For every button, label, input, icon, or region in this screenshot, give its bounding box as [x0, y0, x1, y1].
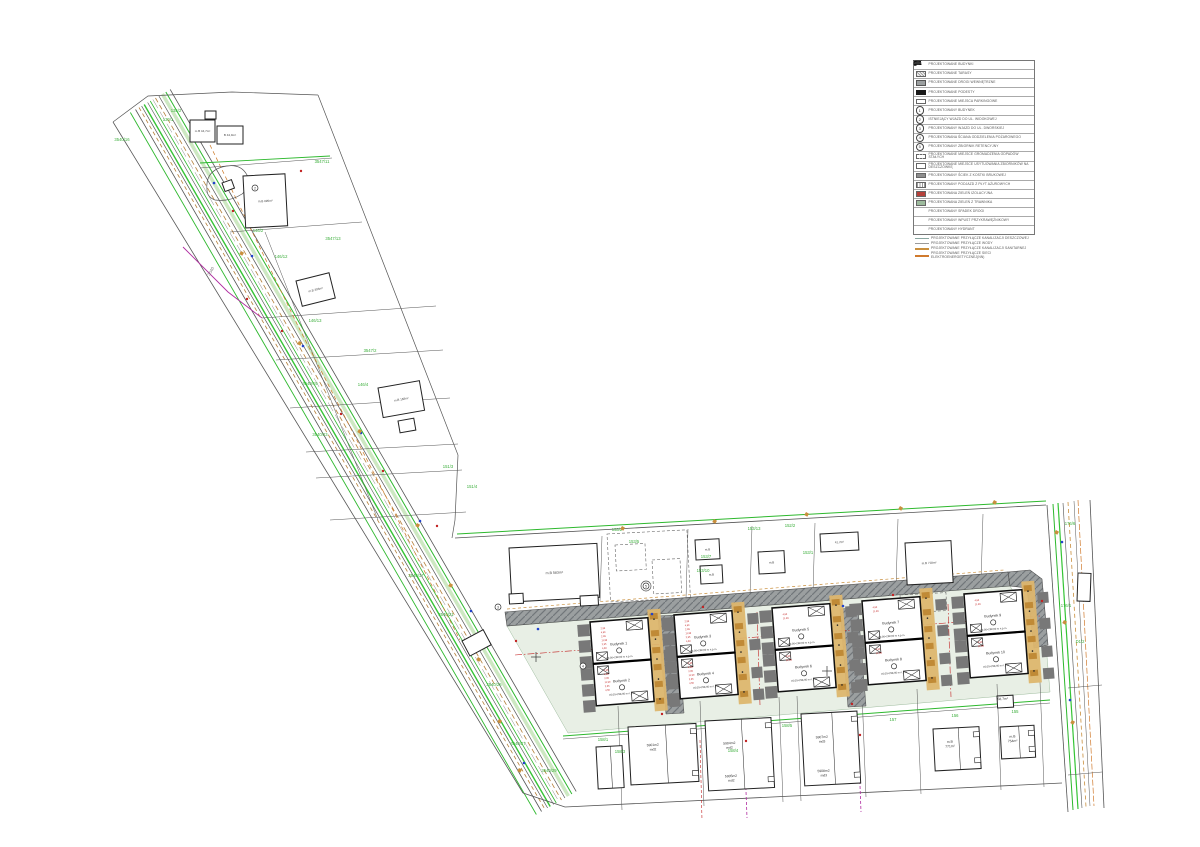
- dimension-note: 11,99: [688, 674, 695, 677]
- parcel-number: 3540/25: [486, 682, 502, 687]
- utility-marker: [1070, 720, 1075, 725]
- terrace: [924, 626, 932, 633]
- parking-pad: [577, 624, 590, 637]
- building-area-label: m.B 44,7m²: [195, 129, 211, 133]
- utility-line-icon: [915, 243, 929, 245]
- parcel-boundary-line: [1078, 500, 1094, 806]
- parcel-number: 3540/23: [312, 432, 328, 437]
- dimension-note: 11,99: [601, 639, 608, 642]
- terrace: [925, 643, 933, 650]
- existing-building: m.B 44,7m²: [190, 120, 215, 142]
- porch: [975, 758, 981, 763]
- utility-dot-blue: [537, 628, 540, 631]
- parcel-boundary-line: [290, 398, 450, 408]
- parking-pad: [664, 661, 677, 674]
- parking-pad: [852, 635, 865, 648]
- legend-red-icon: [916, 191, 926, 197]
- legend-ajour-icon: [916, 182, 926, 188]
- parking-pad: [956, 656, 969, 669]
- parcel-boundary-line: [1053, 504, 1073, 810]
- legend-utility-label: PROJEKTOWANE PRZYŁĄCZE SIECI ELEKTROENER…: [931, 252, 1035, 259]
- parcel-boundary-line: [113, 122, 523, 793]
- parcel-number: 156: [952, 713, 960, 718]
- parcel-number: 3540/21: [438, 612, 454, 617]
- legend-label: PROJEKTOWANY WPUST PRZYKRAWĘŻNIKOWY: [929, 219, 1010, 223]
- utility-dot-blue: [251, 255, 254, 258]
- terrace: [735, 623, 743, 630]
- dimension-note: 11,99: [876, 652, 883, 655]
- callout-4-icon: 4: [916, 134, 925, 143]
- parcel-number: 3540/17: [408, 573, 424, 578]
- parcel-number: 153/13: [748, 526, 761, 531]
- callout-number: 2: [254, 186, 256, 190]
- corridor-line: [144, 105, 550, 807]
- parking-pad: [582, 684, 595, 697]
- parking-pad: [935, 599, 947, 611]
- existing-building: [222, 180, 234, 192]
- parking-pad: [666, 677, 679, 690]
- porch: [851, 716, 857, 721]
- street-corridor: [130, 89, 576, 814]
- legend: PROJEKTOWANE BUDYNKIPROJEKTOWANE TARASYP…: [913, 60, 1035, 259]
- parking-icon: [916, 99, 926, 105]
- legend-item: PROJEKTOWANE MIEJSCE GROMADZENIA ODPADÓW…: [914, 152, 1034, 162]
- utility-dot-blue: [842, 605, 845, 608]
- legend-symbol: [916, 153, 929, 159]
- parcel-number: 3540/16: [114, 137, 130, 142]
- parcel-boundary-line: [1068, 502, 1086, 807]
- parcel-number: 130/1: [163, 117, 174, 122]
- terrace: [1027, 636, 1035, 643]
- legend-label: PROJEKTOWANA ZIELEŃ Z TRAWNIKA: [929, 201, 993, 205]
- existing-building: [205, 111, 216, 119]
- house-type-label: md2: [650, 747, 657, 751]
- legend-symbol: 1: [916, 108, 929, 114]
- legend-label: PROJEKTOWANE MIEJSCE GROMADZENIA ODPADÓW…: [929, 153, 1033, 160]
- utility-dot-red: [859, 734, 861, 736]
- parking-pad: [753, 688, 765, 700]
- callout-number: 4: [582, 664, 584, 668]
- building-area-label: m.B: [769, 560, 775, 564]
- terrace: [655, 681, 663, 688]
- porch: [690, 728, 696, 733]
- parcel-boundary-line: [306, 444, 458, 452]
- building-outline: [1077, 573, 1091, 601]
- terrace: [927, 660, 935, 667]
- legend-label: PROJEKTOWANY ZBIORNIK RETENCYJNY: [929, 145, 999, 149]
- legend-symbol: 3: [916, 126, 929, 132]
- existing-building: [509, 593, 524, 604]
- legend-label: PROJEKTOWANY ŚCIEK Z KOSTKI BRUKOWEJ: [929, 174, 1006, 178]
- site-plan-page: Budynek 1±0,00=258,50 m n.p.m.Budynek 2±…: [0, 0, 1200, 847]
- existing-building: [580, 595, 598, 606]
- legend-symbol: [916, 191, 929, 197]
- parcel-number: 3540/27: [510, 741, 526, 746]
- dimension-note: 11,99: [783, 617, 790, 620]
- dimension-note: 11,99: [604, 681, 611, 684]
- parcel-number: 176/1: [1061, 603, 1072, 608]
- legend-symbol: [916, 173, 929, 179]
- parcel-number: 157: [890, 717, 898, 722]
- legend-item: PROJEKTOWANY HYDRANT: [914, 226, 1034, 234]
- parcel-boundary-line: [1063, 503, 1082, 808]
- utility-dot-blue: [419, 520, 422, 523]
- existing-house: m.B771m²: [933, 727, 981, 771]
- callout-3-icon: 3: [916, 124, 925, 133]
- parcel-number: 158/1: [598, 737, 609, 742]
- legend-label: PROJEKTOWANE MIEJSCA PARKINGOWE: [929, 100, 998, 104]
- house-outline: [705, 718, 775, 791]
- parcel-number: 158/5: [782, 723, 793, 728]
- parcel-number: 3540: [206, 265, 215, 276]
- legend-label: PROJEKTOWANY PODJAZD Z PŁYT AŻUROWYCH: [929, 183, 1011, 187]
- existing-building: m.B 168m²: [378, 381, 425, 418]
- existing-house: 5904m2md25905m2md2: [705, 718, 775, 791]
- terrace: [835, 650, 843, 657]
- legend-road-icon: [916, 80, 926, 86]
- corridor-line: [148, 103, 554, 805]
- legend-symbol: [916, 227, 929, 233]
- porch: [854, 772, 860, 777]
- existing-building: m.B 718m²: [905, 541, 953, 585]
- house-type-label: 771m²: [945, 744, 956, 749]
- legend-solid-icon: [916, 90, 926, 96]
- terrace: [1025, 602, 1033, 609]
- parcel-boundary-line: [917, 689, 921, 794]
- corridor-line: [130, 113, 536, 815]
- legend-utility-item: PROJEKTOWANE PRZYŁĄCZE KANALIZACJI DESZC…: [913, 237, 1035, 241]
- legend-symbol: [916, 182, 929, 188]
- parking-pad: [661, 617, 674, 630]
- legend-label: PROJEKTOWANE TARASY: [929, 72, 972, 76]
- utility-dot-blue: [651, 613, 654, 616]
- parcel-boundary-line: [1058, 503, 1078, 809]
- parcel-boundary-line: [1068, 685, 1102, 688]
- legend-item: PROJEKTOWANE MIEJSCA PARKINGOWE: [914, 97, 1034, 106]
- parcel-number: 135/2: [171, 108, 182, 113]
- legend-item: PROJEKTOWANA ZIELEŃ Z TRAWNIKA: [914, 199, 1034, 208]
- legend-item: 1PROJEKTOWANY BUDYNEK: [914, 106, 1034, 115]
- legend-label: PROJEKTOWANY WJAZD DO UL. DWORSKIEJ: [929, 127, 1005, 131]
- utility-dot-red: [340, 413, 342, 415]
- building-area-label: m.B: [709, 572, 715, 576]
- utility-dot-red: [382, 470, 384, 472]
- parking-pad: [849, 603, 862, 616]
- parcel-number: 152/2: [785, 523, 796, 528]
- legend-symbol: [916, 200, 929, 206]
- legend-item: PROJEKTOWANY PODJAZD Z PŁYT AŻUROWYCH: [914, 181, 1034, 190]
- corridor-line: [153, 99, 559, 801]
- legend-item: PROJEKTOWANE TARASY: [914, 70, 1034, 79]
- terrace: [653, 664, 661, 671]
- house-type-label: 754m²: [1008, 739, 1019, 744]
- parking-pad: [749, 639, 761, 651]
- parcel-number: 3547/2: [364, 348, 377, 353]
- callout-2-icon: 2: [916, 115, 925, 124]
- legend-label: PROJEKTOWANY BUDYNEK: [929, 109, 975, 113]
- parking-pad: [580, 668, 593, 681]
- utility-dot-red: [745, 740, 747, 742]
- hydrant-icon: [916, 227, 926, 233]
- utility-dot-blue: [523, 762, 526, 765]
- house-outline: [628, 723, 699, 784]
- parcel-boundary-line: [1090, 500, 1104, 808]
- terrace: [651, 630, 659, 637]
- legend-utility-label: PROJEKTOWANE PRZYŁĄCZE KANALIZACJI DESZC…: [931, 237, 1029, 241]
- legend-utility-item: PROJEKTOWANE PRZYŁĄCZE WODY: [913, 242, 1035, 246]
- callout-number: 3: [497, 605, 499, 609]
- callout-1-icon: 1: [916, 106, 925, 115]
- parking-pad: [762, 642, 775, 655]
- legend-symbol: 4: [916, 135, 929, 141]
- legend-symbol: [916, 89, 929, 95]
- dashed-parcel-area: [652, 559, 682, 594]
- building-outline: [580, 595, 598, 606]
- parking-pad: [1039, 618, 1051, 630]
- parcel-number: D1/2: [1076, 639, 1086, 644]
- parcel-boundary-line: [686, 529, 688, 599]
- parking-pad: [765, 686, 778, 699]
- building-area-label: m.B 695m²: [258, 199, 273, 204]
- utility-dot-blue: [302, 345, 305, 348]
- parcel-number: 153/1: [803, 550, 814, 555]
- legend-symbol: [916, 98, 929, 104]
- terrace: [1029, 653, 1037, 660]
- utility-marker: [476, 657, 481, 662]
- parcel-boundary-line: [276, 350, 443, 360]
- parking-pad: [762, 654, 775, 667]
- legend-label: PROJEKTOWANE MIEJSCE USYTUOWANIA ZBIORNI…: [929, 163, 1033, 170]
- parcel-number: 151/4: [467, 484, 478, 489]
- terrace: [1026, 619, 1034, 626]
- utility-line-icon: [915, 248, 929, 250]
- callout-number: 5: [645, 584, 647, 588]
- building-area-label: m.B 718m²: [922, 561, 937, 566]
- house-outline: [801, 711, 861, 786]
- utility-marker: [898, 506, 903, 511]
- porch: [1029, 746, 1035, 751]
- parcel-number: 3547/11: [315, 159, 330, 164]
- legend-symbol: [916, 80, 929, 86]
- legend-symbol: 2: [916, 117, 929, 123]
- legend-item: PROJEKTOWANE BUDYNKI: [914, 61, 1034, 70]
- building-area-label: 41,7m²: [835, 540, 845, 544]
- parcel-number: 3540/29: [541, 768, 557, 773]
- utility-dot-red: [702, 606, 704, 608]
- utility-dot-red: [515, 640, 517, 642]
- parking-pad: [747, 613, 759, 625]
- parking-pad: [578, 640, 591, 653]
- utility-dot-red: [281, 330, 283, 332]
- parcel-number: 153/7: [701, 554, 712, 559]
- parcel-number: 176/6: [1065, 521, 1076, 526]
- utility-dot-red: [892, 594, 894, 596]
- parking-pad: [759, 610, 772, 623]
- utility-marker: [804, 512, 809, 517]
- corridor-line: [150, 101, 556, 803]
- legend-item: 4PROJEKTOWANA ŚCIANA ODDZIELENIA POŻAROW…: [914, 134, 1034, 143]
- utility-dot-red: [661, 713, 663, 715]
- parking-pad: [952, 612, 965, 625]
- terrace: [736, 640, 744, 647]
- existing-building: m.B 695m²: [243, 174, 288, 228]
- legend-item: 2ISTNIEJĄCY WJAZD DO UL. WIDOKOWEJ: [914, 116, 1034, 125]
- parcel-boundary-line: [750, 526, 752, 596]
- porch: [765, 723, 771, 728]
- parcel-number: 153/10: [697, 568, 710, 573]
- building-outline: [222, 180, 234, 192]
- parking-pad: [1043, 667, 1055, 679]
- legend-item: PROJEKTOWANE MIEJSCE USYTUOWANIA ZBIORNI…: [914, 162, 1034, 172]
- parcel-boundary-line: [813, 523, 815, 593]
- parcel-number: 146/12: [275, 254, 288, 259]
- parking-pad: [1041, 646, 1053, 658]
- legend-box: PROJEKTOWANE BUDYNKIPROJEKTOWANE TARASYP…: [913, 60, 1035, 235]
- parcel-number: 3540/19: [302, 381, 318, 386]
- legend-symbol: [916, 163, 929, 169]
- utility-dot-blue: [1069, 699, 1072, 702]
- parking-pad: [855, 679, 868, 692]
- parking-pad: [1037, 592, 1049, 604]
- terrace: [837, 667, 845, 674]
- existing-building: [1077, 573, 1091, 601]
- legend-label: PROJEKTOWANE DROGI WEWNĘTRZNE: [929, 81, 996, 85]
- terrace: [834, 633, 842, 640]
- parcel-number: 155: [1012, 709, 1020, 714]
- corridor-line: [139, 108, 545, 810]
- utility-dot-blue: [470, 610, 473, 613]
- corridor-line: [170, 89, 576, 791]
- legend-item: 5PROJEKTOWANY ZBIORNIK RETENCYJNY: [914, 143, 1034, 152]
- terrace: [652, 647, 660, 654]
- parcel-boundary-line: [1074, 501, 1090, 806]
- parcel-boundary-line: [600, 536, 602, 601]
- legend-item: PROJEKTOWANY SPADEK DROGI: [914, 208, 1034, 217]
- parcel-number: 3547/13: [325, 236, 341, 241]
- existing-building: m.B: [758, 551, 785, 574]
- utility-dot-red: [300, 170, 302, 172]
- parking-pad: [850, 619, 863, 632]
- existing-house: 5907m2md35908m2md3: [801, 711, 861, 786]
- legend-hatch-icon: [916, 71, 926, 77]
- dimension-note: 11,99: [786, 659, 793, 662]
- legend-label: PROJEKTOWANA ZIELEŃ IZOLACYJNA: [929, 192, 993, 196]
- parking-pad: [951, 596, 964, 609]
- utility-line-icon: [915, 238, 929, 240]
- house-type-label: md3: [819, 739, 826, 743]
- existing-house: 5901m2md2: [628, 723, 699, 784]
- parking-pad: [852, 647, 865, 660]
- parcel-number: 146/2: [253, 228, 264, 233]
- corridor-line: [142, 106, 548, 808]
- parking-pad: [939, 653, 951, 665]
- legend-symbol: [916, 218, 929, 224]
- legend-item: 3PROJEKTOWANY WJAZD DO UL. DWORSKIEJ: [914, 125, 1034, 134]
- utility-dot-red: [851, 703, 853, 705]
- parcel-number: 146/13: [309, 318, 322, 323]
- parcel-boundary-line: [455, 505, 1046, 538]
- parcel-boundary-line: [1068, 772, 1102, 775]
- corridor-line: [162, 94, 568, 796]
- parking-icon: [916, 163, 926, 169]
- legend-symbol: [916, 209, 929, 215]
- legend-label: ISTNIEJĄCY WJAZD DO UL. WIDOKOWEJ: [929, 118, 997, 122]
- parcel-number: 158/4: [728, 748, 739, 753]
- parking-pad: [583, 700, 596, 713]
- terrace: [739, 674, 747, 681]
- legend-item: PROJEKTOWANE DROGI WEWNĘTRZNE: [914, 79, 1034, 88]
- parcel-number: 158/3: [615, 749, 626, 754]
- legend-label: PROJEKTOWANE PODESTY: [929, 91, 975, 95]
- existing-building: B 44,9m²: [217, 126, 243, 144]
- building-area-label: B 44,9m²: [224, 133, 236, 137]
- utility-marker: [239, 251, 244, 256]
- corridor-line: [166, 92, 572, 794]
- dimension-note: 11,99: [978, 645, 985, 648]
- parking-pad: [667, 693, 680, 706]
- dashed-parcel-area: [615, 543, 646, 571]
- parcel-boundary-line: [1040, 682, 1044, 787]
- parcel-number: 146/4: [358, 382, 369, 387]
- legend-symbol: [916, 71, 929, 77]
- legend-symbol: 5: [916, 144, 929, 150]
- existing-house: m.B754m²: [1000, 725, 1036, 759]
- parking-pad: [941, 674, 953, 686]
- slope-arrow-icon: [916, 209, 926, 215]
- parking-pad: [937, 625, 949, 637]
- parcel-number: 153/5: [629, 539, 640, 544]
- house-type-label: md2: [728, 778, 735, 782]
- legend-utility-item: PROJEKTOWANE PRZYŁĄCZE SIECI ELEKTROENER…: [913, 252, 1035, 259]
- porch: [973, 732, 979, 737]
- parking-pad: [662, 633, 675, 646]
- parcel-number: 151/3: [443, 464, 454, 469]
- dimension-note: 11,99: [975, 603, 982, 606]
- dashed-parcel-area: [607, 530, 690, 602]
- parking-pad: [760, 626, 773, 639]
- callout-5-icon: 5: [916, 143, 925, 152]
- parking-pad: [954, 640, 967, 653]
- existing-building: m.B 393m²: [296, 273, 335, 306]
- building-outline: [398, 418, 416, 433]
- parcel-boundary-line: [330, 512, 466, 520]
- parking-pad: [764, 670, 777, 683]
- legend-utility-label: PROJEKTOWANE PRZYŁĄCZE WODY: [931, 242, 993, 246]
- building-area-label: m.B: [705, 547, 711, 551]
- porch: [692, 770, 698, 775]
- legend-dash-icon: [916, 154, 926, 160]
- dimension-note: 11,99: [873, 610, 880, 613]
- utility-dot-blue: [213, 182, 216, 185]
- parking-pad: [957, 672, 970, 685]
- existing-building: [398, 418, 416, 433]
- legend-label: PROJEKTOWANA ŚCIANA ODDZIELENIA POŻAROWE…: [929, 136, 1022, 140]
- utility-dot-red: [1041, 600, 1043, 602]
- building-outline: [205, 111, 216, 119]
- utility-dot-red: [232, 210, 234, 212]
- building-outline: [509, 593, 524, 604]
- terrace: [923, 609, 931, 616]
- legend-label: PROJEKTOWANY SPADEK DROGI: [929, 210, 985, 214]
- legend-utility-label: PROJEKTOWANE PRZYŁĄCZE KANALIZACJI SANIT…: [931, 247, 1026, 251]
- terrace: [833, 616, 841, 623]
- legend-item: PROJEKTOWANA ZIELEŃ IZOLACYJNA: [914, 190, 1034, 199]
- dimension-note: 11,99: [685, 632, 692, 635]
- legend-item: PROJEKTOWANY WPUST PRZYKRAWĘŻNIKOWY: [914, 217, 1034, 226]
- utility-dot-blue: [1061, 541, 1064, 544]
- legend-green-icon: [916, 200, 926, 206]
- utility-line-icon: [915, 255, 929, 257]
